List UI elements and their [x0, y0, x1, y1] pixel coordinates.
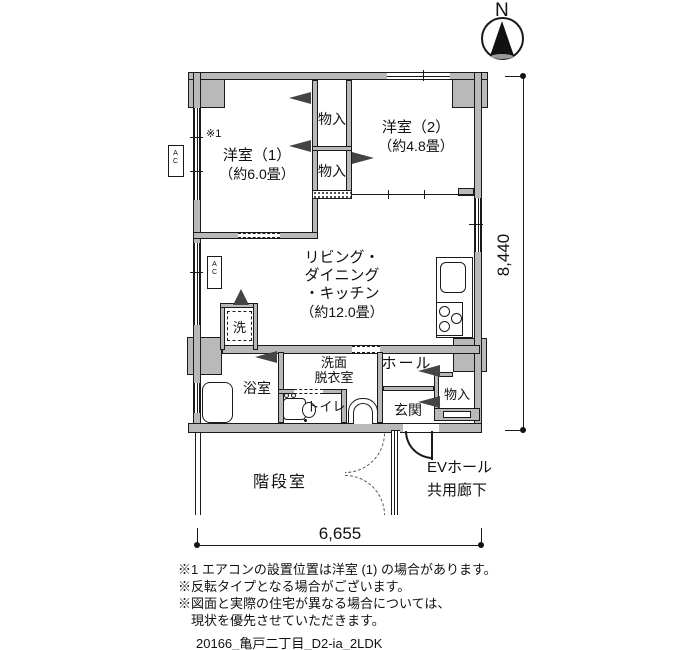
stove-burner — [439, 321, 450, 332]
room-label-bed2: 洋室（2） （約4.8畳） — [376, 119, 456, 155]
room-label-bed1: 洋室（1） （約6.0畳） — [198, 146, 316, 184]
track-tick — [388, 190, 389, 199]
room-name: 共用廊下 — [427, 479, 492, 502]
stove-burner — [439, 306, 450, 317]
window — [387, 72, 450, 80]
room-label-washroom: 洗面 脱衣室 — [306, 355, 362, 385]
door-triangle-icon — [255, 351, 277, 363]
dimension-tick — [505, 430, 523, 431]
laundry-label: 洗 — [227, 317, 252, 336]
door-swing-arc-dashed — [345, 433, 385, 473]
room-label-closet1: 物入 — [314, 109, 350, 129]
dimension-tick — [481, 528, 482, 545]
floor-plan-page: N 洗 — [0, 0, 700, 650]
room-name: 洋室（2） — [376, 119, 456, 137]
toilet-door — [294, 389, 323, 394]
wall-right — [474, 72, 482, 433]
door-triangle-icon — [233, 289, 249, 305]
room-label-ldk: リビング・ ダイニング ・キッチン （約12.0畳） — [292, 249, 392, 321]
dimension-tick — [505, 76, 523, 77]
room-name: 脱衣室 — [306, 370, 362, 385]
door-swing-arc — [405, 431, 433, 459]
door-triangle-icon — [289, 92, 311, 104]
ac-unit-label: AC — [172, 150, 179, 166]
toilet-detail — [291, 393, 296, 398]
room-name: 洋室（1） — [198, 146, 316, 165]
room-area: （約4.8畳） — [376, 137, 456, 155]
kitchen-sink — [440, 262, 466, 293]
window — [475, 198, 481, 252]
room-label-ev-hall: EVホール 共用廊下 — [427, 456, 492, 502]
compass-needle-base — [491, 54, 513, 59]
file-label: 20166_亀戸二丁目_D2-ia_2LDK — [196, 633, 382, 650]
stair-partition — [391, 430, 400, 515]
room-name: ・キッチン — [292, 285, 392, 303]
sliding-door — [352, 346, 380, 353]
room-name: リビング・ — [292, 249, 392, 267]
window — [194, 383, 200, 413]
dimension-label-vertical: 8,440 — [494, 220, 514, 290]
window-tick — [190, 137, 203, 138]
room-label-closet3: 物入 — [440, 384, 474, 403]
toilet-detail — [284, 393, 289, 398]
window-tick — [469, 224, 483, 225]
room-name: ダイニング — [292, 267, 392, 285]
note-line-4: 現状を優先させていただきます。 — [191, 610, 385, 629]
room-area: （約6.0畳） — [198, 165, 316, 184]
wall-laundry — [253, 303, 258, 350]
dimension-tick — [197, 528, 198, 545]
wall-closet-divider — [312, 146, 352, 151]
room-label-entry: 玄関 — [388, 400, 428, 420]
room-name: EVホール — [427, 456, 492, 479]
stair-wall — [195, 433, 201, 515]
room-area: （約12.0畳） — [292, 303, 392, 321]
window-tick — [190, 272, 203, 273]
door-swing-arc-dashed — [345, 475, 385, 515]
dimension-line-horizontal — [197, 545, 482, 546]
sliding-door — [238, 233, 280, 238]
room-name: 洗面 — [306, 355, 362, 370]
compass-needle-icon — [490, 21, 514, 56]
wall-laundry — [220, 303, 225, 350]
room-label-closet2: 物入 — [314, 161, 350, 181]
note-marker-label: ※1 — [206, 127, 221, 140]
room-label-hall: ホール — [380, 352, 434, 373]
sliding-door-track — [312, 190, 352, 199]
dimension-line-vertical — [523, 76, 524, 431]
stove-burner — [451, 313, 462, 324]
track-tick — [424, 190, 425, 199]
ac-unit-label: AC — [211, 261, 218, 277]
wall-hall-entry — [383, 386, 434, 391]
toilet-detail — [304, 419, 307, 422]
wall-recess — [443, 411, 471, 418]
door-triangle-icon — [352, 152, 374, 164]
room-label-toilet: トイレ — [306, 396, 346, 415]
window-tick — [423, 70, 424, 81]
window — [194, 243, 200, 325]
dimension-label-horizontal: 6,655 — [290, 524, 390, 544]
sliding-partition-track — [352, 194, 474, 195]
room-label-stairwell: 階段室 — [246, 468, 314, 492]
bathtub — [202, 382, 233, 423]
room-label-bath: 浴室 — [236, 378, 278, 398]
shoe-cabinet-inner — [353, 403, 373, 424]
